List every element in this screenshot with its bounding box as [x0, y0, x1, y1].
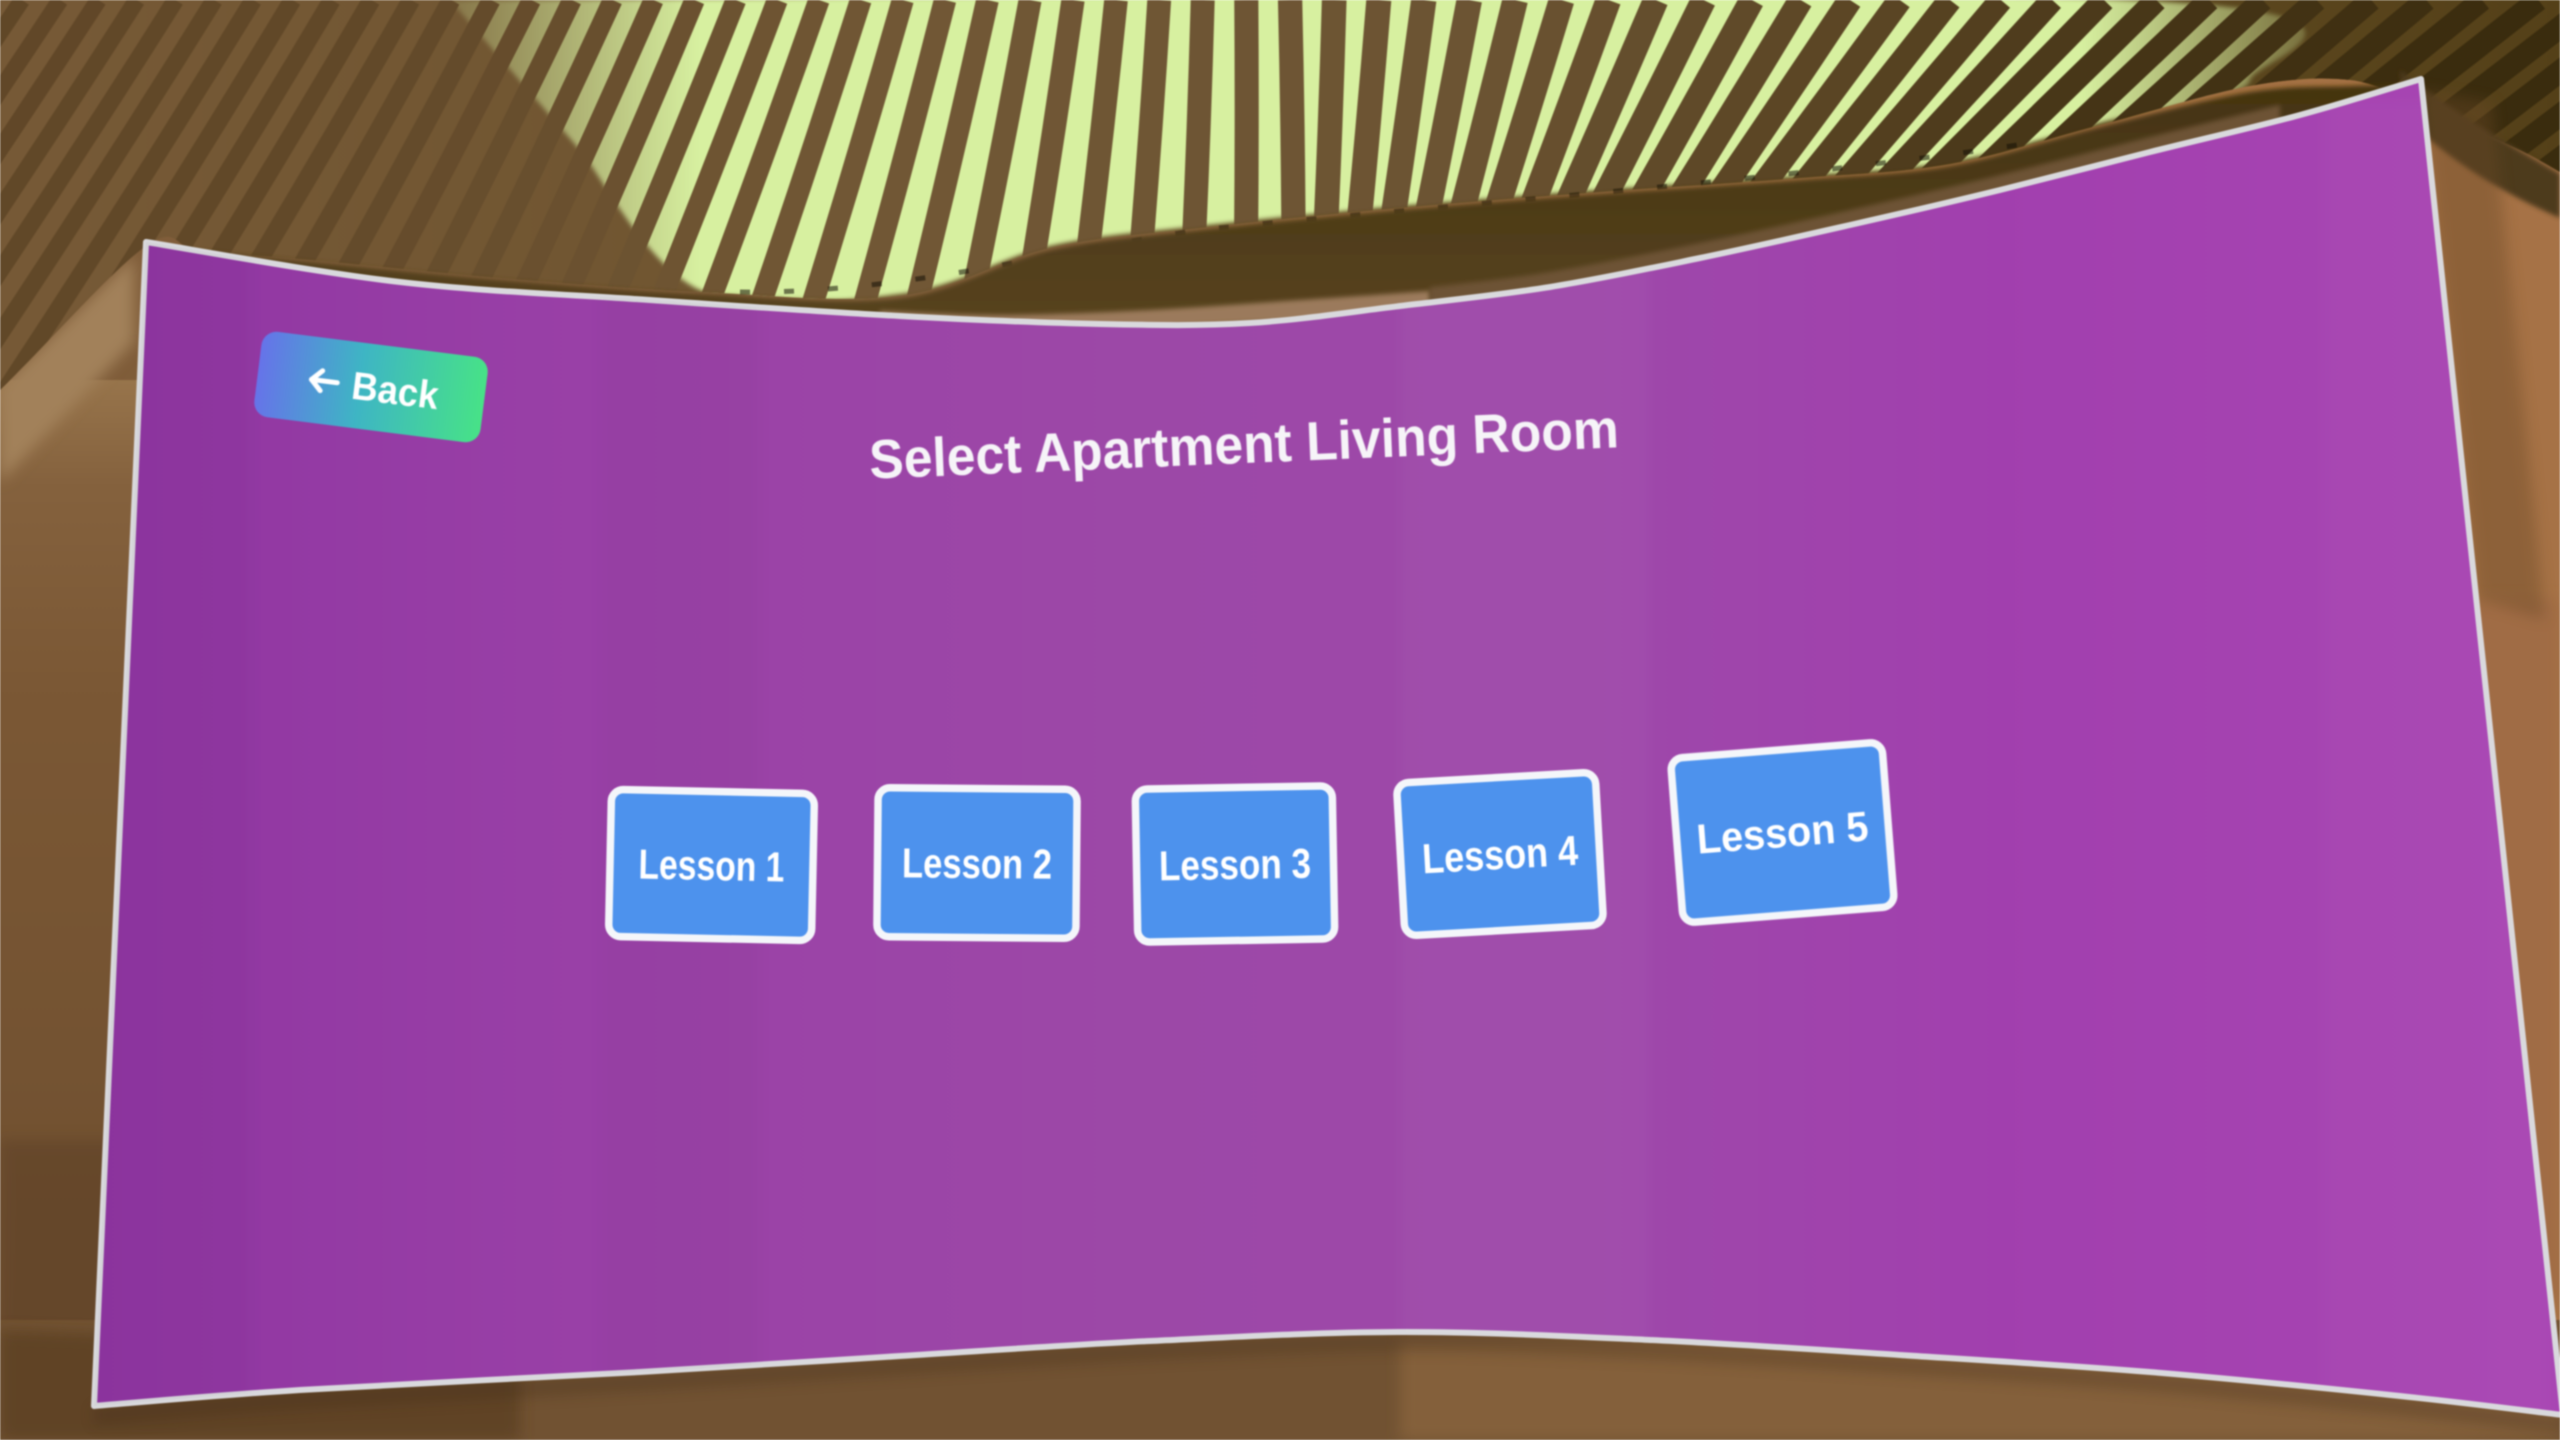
- svg-text:Lesson 4: Lesson 4: [1421, 827, 1580, 883]
- svg-text:Lesson 2: Lesson 2: [902, 839, 1052, 887]
- svg-text:Lesson 1: Lesson 1: [638, 840, 785, 890]
- svg-text:Lesson 3: Lesson 3: [1159, 840, 1312, 890]
